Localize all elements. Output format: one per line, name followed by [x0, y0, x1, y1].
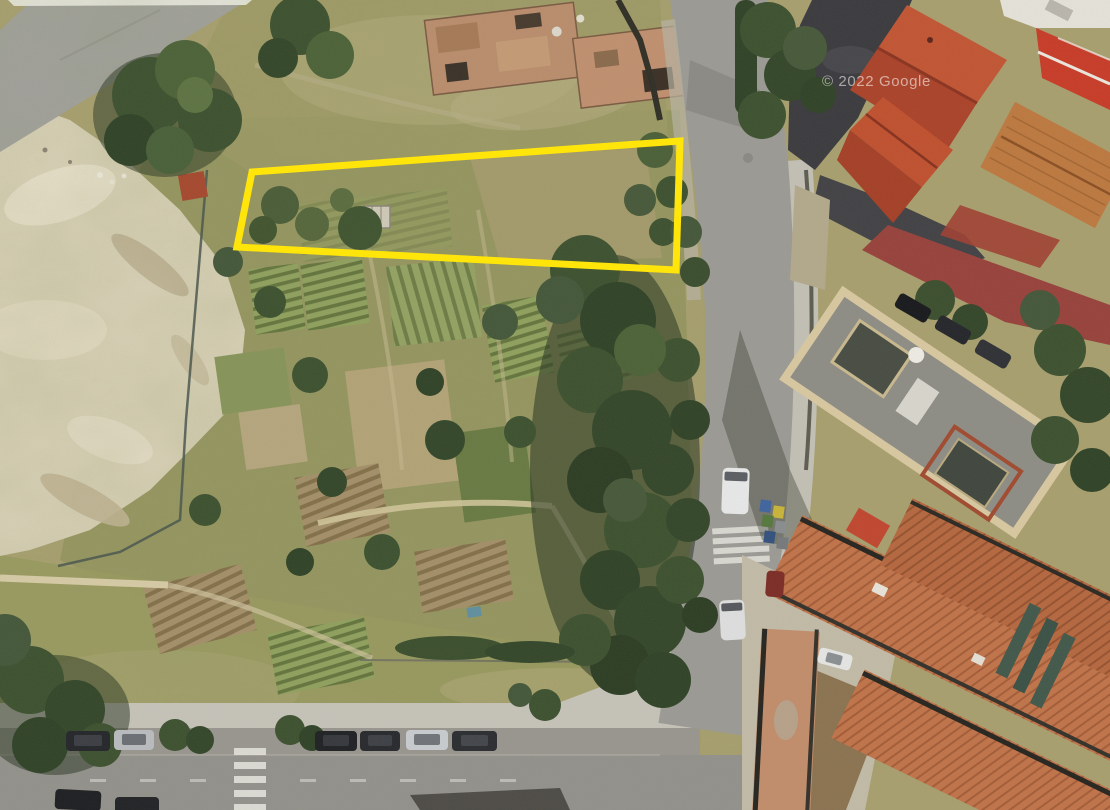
- satellite-map-canvas[interactable]: © 2022 Google: [0, 0, 1110, 810]
- google-watermark: © 2022 Google: [822, 73, 931, 90]
- satellite-image: © 2022 Google: [0, 0, 1110, 810]
- grain-overlay: [0, 0, 1110, 810]
